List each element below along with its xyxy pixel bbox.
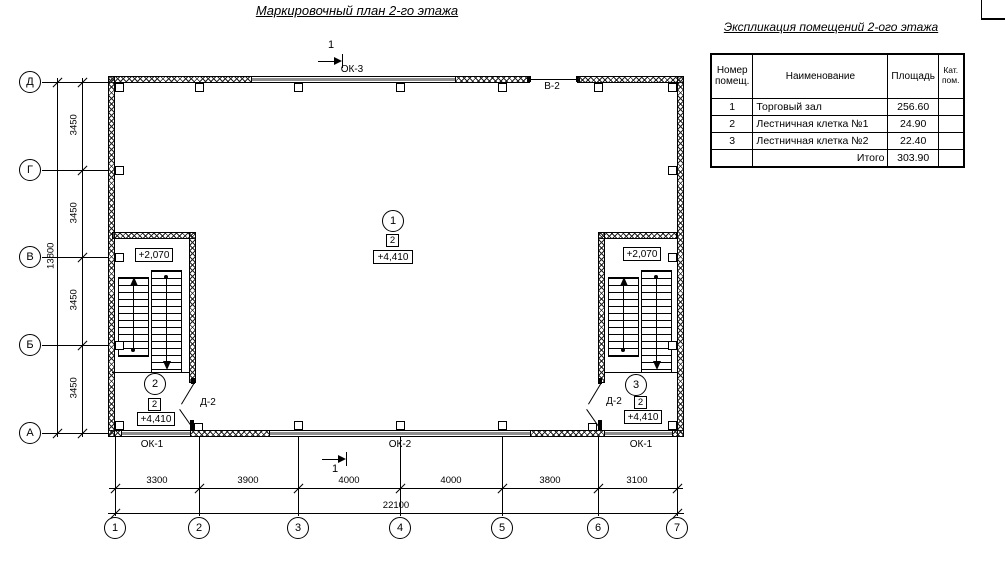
- axis-line: [115, 437, 116, 516]
- stair-arrow-dot: [131, 348, 135, 352]
- elevation-mark: +2,070: [135, 248, 173, 262]
- dim-line-vertical-total: [57, 78, 58, 437]
- wall-top-segment: [577, 76, 684, 83]
- axis-number-circle: 3: [287, 517, 309, 539]
- room-number-circle: 1: [382, 210, 404, 232]
- pilaster: [294, 83, 303, 92]
- table-row: 3 Лестничная клетка №2 22.40: [711, 132, 964, 149]
- stair-right-top-wall: [598, 232, 677, 239]
- stair-landing-line: [605, 372, 677, 373]
- wall-left: [108, 76, 115, 437]
- axis-number-circle: 2: [188, 517, 210, 539]
- window-label-ok3: ОК-3: [332, 65, 372, 75]
- col-header-category: Кат. пом.: [938, 54, 963, 98]
- pilaster: [498, 421, 507, 430]
- dim-value: 3450: [69, 188, 79, 238]
- dim-value: 3450: [69, 363, 79, 413]
- frame-corner-vline: [981, 0, 982, 18]
- stair-left-top-wall: [112, 232, 196, 239]
- pilaster: [115, 166, 124, 175]
- stair-up-arrowhead-icon: [620, 277, 628, 286]
- elevation-mark: +4,410: [624, 410, 662, 424]
- axis-line: [298, 437, 299, 516]
- dim-value: 3450: [69, 275, 79, 325]
- elevation-mark: +2,070: [623, 247, 661, 261]
- pilaster: [594, 83, 603, 92]
- elevation-mark: +4,410: [373, 250, 413, 264]
- axis-letter-circle: Б: [19, 334, 41, 356]
- stair-down-arrowhead-icon: [653, 361, 661, 370]
- cell-name: Лестничная клетка №1: [753, 115, 888, 132]
- window-label-ok1-left: ОК-1: [132, 440, 172, 450]
- room-number-circle: 2: [144, 373, 166, 395]
- wall-bottom-segment: [190, 430, 270, 437]
- opening-label-v2: В-2: [532, 82, 572, 92]
- stair-down-arrow: [166, 276, 167, 362]
- room-category-square: 2: [148, 398, 161, 411]
- dim-value: 4000: [329, 476, 369, 486]
- cell-empty: [938, 149, 963, 167]
- dim-value: 3800: [530, 476, 570, 486]
- stair-down-arrow: [656, 276, 657, 362]
- section-arrow-icon: [338, 455, 346, 463]
- room-schedule-table: Номер помещ. Наименование Площадь Кат. п…: [710, 53, 965, 168]
- pilaster: [498, 83, 507, 92]
- axis-line: [42, 82, 108, 83]
- axis-number-circle: 6: [587, 517, 609, 539]
- door-d2-left-jamb: [191, 378, 195, 384]
- col-header-area: Площадь: [888, 54, 939, 98]
- window-ok3: [252, 76, 455, 83]
- frame-corner-hline: [981, 18, 1005, 20]
- opening-v2-line: [530, 79, 577, 80]
- cell-number: 2: [711, 115, 753, 132]
- stair-arrow-dot: [164, 275, 168, 279]
- cell-name: Лестничная клетка №2: [753, 132, 888, 149]
- room-schedule-title: Экспликация помещений 2-ого этажа: [707, 21, 955, 35]
- floor-plan-sheet: Маркировочный план 2-го этажа Экспликаци…: [0, 0, 1005, 582]
- axis-letter-circle: Д: [19, 71, 41, 93]
- stair-up-arrow: [623, 283, 624, 349]
- stair-arrow-dot: [654, 275, 658, 279]
- pilaster: [115, 421, 124, 430]
- wall-bottom-segment: [530, 430, 605, 437]
- stair-up-arrow: [133, 283, 134, 349]
- dim-value: 4000: [431, 476, 471, 486]
- dim-value: 3900: [228, 476, 268, 486]
- cell-number: 3: [711, 132, 753, 149]
- stair-right-partition: [598, 232, 605, 383]
- col-header-number: Номер помещ.: [711, 54, 753, 98]
- window-ok1-left: [122, 430, 190, 437]
- room-category-square: 2: [386, 234, 399, 247]
- cell-area: 256.60: [888, 98, 939, 115]
- cell-total-value: 303.90: [888, 149, 939, 167]
- cell-category: [938, 98, 963, 115]
- stair-arrow-dot: [621, 348, 625, 352]
- door-label-d2-right: Д-2: [599, 397, 629, 407]
- axis-number-circle: 7: [666, 517, 688, 539]
- plan-title: Маркировочный план 2-го этажа: [237, 4, 477, 19]
- window-ok1-right: [605, 430, 672, 437]
- pilaster: [668, 253, 677, 262]
- section-mark-bar: [346, 452, 347, 466]
- window-ok2: [270, 430, 530, 437]
- pilaster: [668, 166, 677, 175]
- pilaster: [396, 83, 405, 92]
- table-total-row: Итого 303.90: [711, 149, 964, 167]
- axis-line: [42, 433, 108, 434]
- col-header-name: Наименование: [753, 54, 888, 98]
- axis-line: [677, 437, 678, 516]
- wall-right: [677, 76, 684, 437]
- pilaster: [668, 83, 677, 92]
- cell-area: 22.40: [888, 132, 939, 149]
- wall-top-segment: [108, 76, 252, 83]
- stair-down-arrowhead-icon: [163, 361, 171, 370]
- pilaster: [668, 421, 677, 430]
- cell-name: Торговый зал: [753, 98, 888, 115]
- door-exterior-left-threshold: [194, 423, 203, 431]
- dim-value: 22100: [371, 501, 421, 511]
- axis-letter-circle: А: [19, 422, 41, 444]
- axis-line: [598, 437, 599, 516]
- cell-category: [938, 115, 963, 132]
- cell-category: [938, 132, 963, 149]
- axis-line: [502, 437, 503, 516]
- pilaster: [294, 421, 303, 430]
- dim-value: 3450: [69, 100, 79, 150]
- section-mark-label: 1: [321, 40, 341, 51]
- table-row: 2 Лестничная клетка №1 24.90: [711, 115, 964, 132]
- table-row: 1 Торговый зал 256.60: [711, 98, 964, 115]
- axis-letter-circle: В: [19, 246, 41, 268]
- axis-line: [42, 345, 108, 346]
- window-label-ok2: ОК-2: [380, 440, 420, 450]
- door-exterior-right-jamb: [598, 420, 602, 431]
- cell-empty: [711, 149, 753, 167]
- wall-top-segment: [455, 76, 530, 83]
- pilaster: [396, 421, 405, 430]
- cell-total-label: Итого: [753, 149, 888, 167]
- dim-value: 3100: [617, 476, 657, 486]
- axis-number-circle: 1: [104, 517, 126, 539]
- dim-line-horizontal-total: [108, 513, 684, 514]
- door-label-d2-left: Д-2: [193, 398, 223, 408]
- axis-line: [42, 170, 108, 171]
- door-exterior-right-threshold: [588, 423, 597, 431]
- pilaster: [195, 83, 204, 92]
- dim-value: 13800: [46, 231, 56, 281]
- door-d2-right-jamb: [598, 378, 602, 384]
- axis-letter-circle: Г: [19, 159, 41, 181]
- axis-line: [199, 437, 200, 516]
- axis-number-circle: 4: [389, 517, 411, 539]
- room-number-circle: 3: [625, 374, 647, 396]
- pilaster: [115, 341, 124, 350]
- axis-number-circle: 5: [491, 517, 513, 539]
- pilaster: [115, 83, 124, 92]
- dim-value: 3300: [137, 476, 177, 486]
- stair-left-partition: [189, 232, 196, 383]
- cell-area: 24.90: [888, 115, 939, 132]
- stair-up-arrowhead-icon: [130, 277, 138, 286]
- window-label-ok1-right: ОК-1: [621, 440, 661, 450]
- pilaster: [115, 253, 124, 262]
- elevation-mark: +4,410: [137, 412, 175, 426]
- section-mark-label: 1: [325, 464, 345, 475]
- pilaster: [668, 341, 677, 350]
- cell-number: 1: [711, 98, 753, 115]
- room-category-square: 2: [634, 396, 647, 409]
- opening-v2-end: [527, 76, 531, 82]
